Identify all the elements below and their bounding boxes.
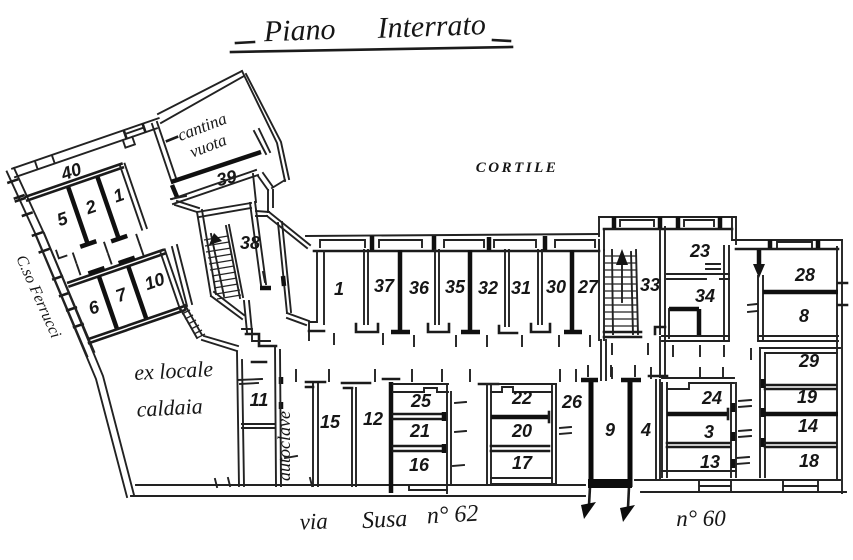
svg-text:10: 10 [142,269,167,294]
svg-text:2: 2 [82,196,99,218]
svg-text:1: 1 [111,184,127,206]
svg-text:23: 23 [689,241,710,261]
svg-text:34: 34 [695,286,715,306]
svg-text:19: 19 [797,387,817,407]
svg-text:caldaia: caldaia [136,393,203,421]
svg-text:Interrato: Interrato [376,8,486,45]
svg-text:4: 4 [640,420,651,440]
svg-text:Piano: Piano [262,13,336,49]
svg-text:14: 14 [798,416,818,436]
svg-text:C.so Ferrucci: C.so Ferrucci [12,253,64,341]
svg-text:11: 11 [250,390,269,410]
svg-text:37: 37 [374,276,395,296]
svg-text:CORTILE: CORTILE [476,160,559,176]
svg-text:21: 21 [409,421,430,441]
svg-text:16: 16 [409,455,430,475]
svg-text:26: 26 [561,392,583,412]
svg-text:n° 62: n° 62 [426,501,479,530]
svg-text:8: 8 [799,306,809,326]
svg-text:30: 30 [546,277,566,297]
svg-text:15: 15 [320,412,341,432]
svg-text:31: 31 [511,278,531,298]
svg-text:1: 1 [334,279,344,299]
svg-text:32: 32 [478,278,498,298]
svg-text:3: 3 [704,422,714,442]
svg-text:via: via [299,509,328,535]
svg-text:n° 60: n° 60 [676,506,726,531]
svg-text:12: 12 [363,409,383,429]
svg-text:27: 27 [577,277,599,297]
svg-text:20: 20 [511,421,532,441]
svg-text:ex locale: ex locale [134,356,214,385]
svg-text:6: 6 [86,296,103,318]
svg-text:9: 9 [605,420,615,440]
svg-text:22: 22 [511,388,532,408]
svg-text:autoclave: autoclave [274,411,294,481]
svg-text:28: 28 [794,265,815,285]
svg-text:29: 29 [798,351,819,371]
svg-text:35: 35 [445,277,466,297]
svg-text:25: 25 [410,391,432,411]
svg-text:13: 13 [700,452,720,472]
svg-text:7: 7 [113,284,130,306]
svg-text:18: 18 [799,451,819,471]
svg-text:Susa: Susa [361,506,408,534]
svg-text:38: 38 [240,233,260,253]
svg-text:36: 36 [409,278,430,298]
svg-text:24: 24 [701,388,722,408]
svg-text:33: 33 [640,275,660,295]
svg-text:17: 17 [512,453,533,473]
svg-text:5: 5 [54,208,71,230]
